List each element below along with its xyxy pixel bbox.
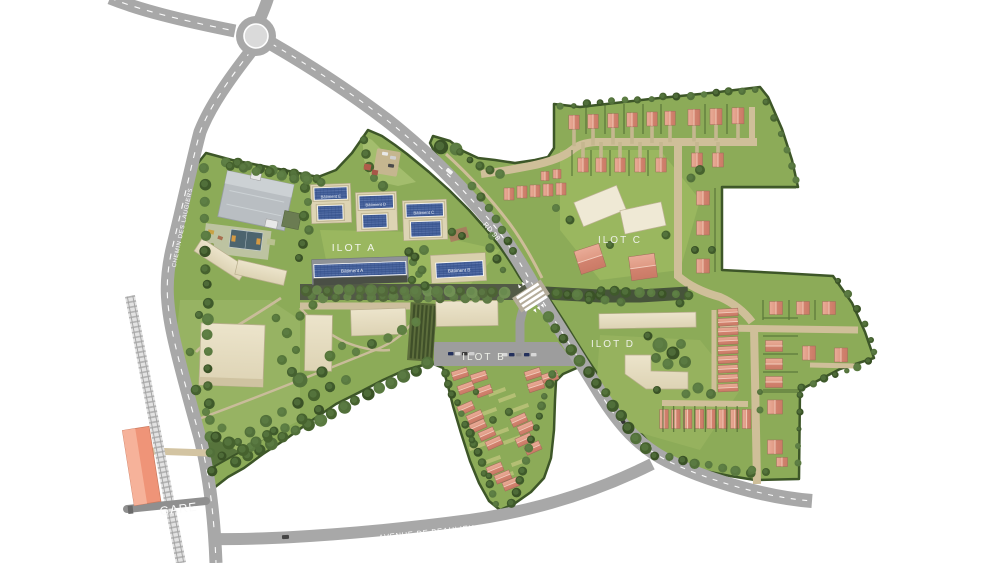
svg-text:ILOT D: ILOT D [591,339,635,350]
svg-text:ILOT B: ILOT B [462,352,506,363]
svg-text:ILOT C: ILOT C [598,235,642,246]
svg-text:Bâtiment E: Bâtiment E [320,194,341,200]
svg-text:Bâtiment C: Bâtiment C [413,210,434,216]
svg-text:Bâtiment D: Bâtiment D [365,202,386,208]
svg-text:Bâtiment A: Bâtiment A [341,268,364,274]
svg-text:ILOT A: ILOT A [332,242,377,254]
